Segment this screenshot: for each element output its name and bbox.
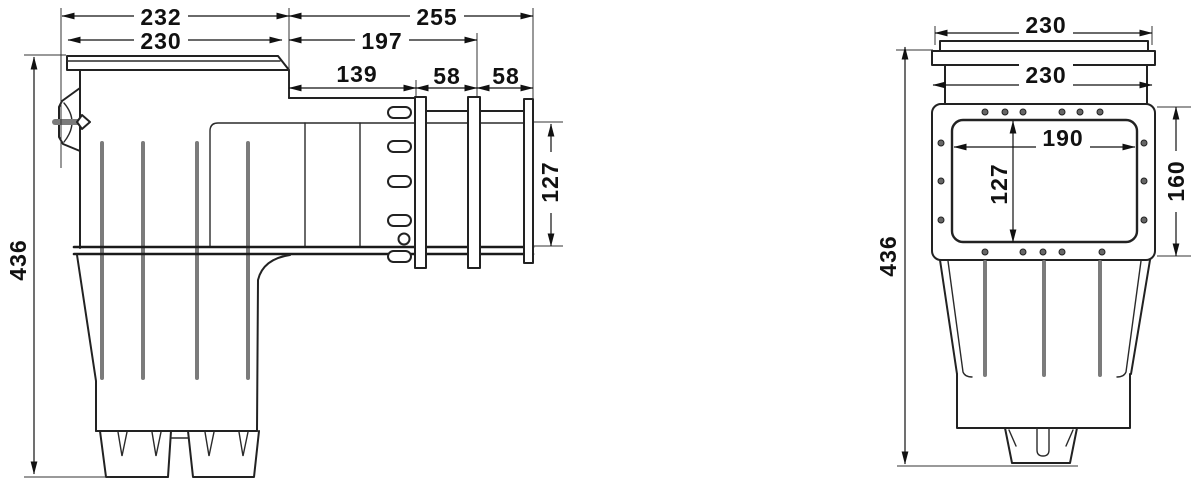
front-foot-slot [1037, 428, 1049, 456]
dim-label-overall-width: 232 [134, 4, 188, 30]
dim-text: 127 [537, 161, 563, 202]
dim-label-faceplate-height: 160 [1163, 151, 1189, 212]
side-bucket-left [77, 255, 96, 431]
dim-label-front-body-width: 230 [1019, 62, 1073, 88]
side-throat-inner-top [210, 123, 533, 246]
side-foot-notches [118, 432, 248, 456]
dim-label-overall-height-side: 436 [5, 239, 31, 280]
dim-text: 232 [140, 4, 181, 30]
side-clip [55, 88, 90, 151]
side-view: 232 230 255 197 139 58 58 127 436 [5, 4, 564, 477]
side-throat-end-cap [524, 99, 533, 263]
side-pivot-hole [399, 234, 410, 245]
side-flange-1 [415, 97, 426, 268]
side-bucket-right [257, 255, 290, 431]
front-lower-box [957, 374, 1130, 428]
dim-text: 230 [1025, 12, 1066, 38]
front-ribs [985, 262, 1100, 375]
dim-label-flange-gap-1: 58 [433, 63, 461, 89]
front-lid-top [940, 41, 1148, 51]
dim-label-lid-width: 230 [134, 28, 188, 54]
dim-text: 190 [1042, 125, 1083, 151]
side-foot-right [188, 431, 259, 477]
side-ribs [102, 143, 248, 378]
dim-label-throat-length: 255 [410, 4, 464, 30]
dim-text: 160 [1163, 160, 1189, 201]
dim-text: 197 [361, 28, 402, 54]
dim-label-flange-gap-2: 58 [492, 63, 520, 89]
drawing-canvas: 232 230 255 197 139 58 58 127 436 [0, 0, 1200, 493]
dim-text: 230 [140, 28, 181, 54]
dim-text: 230 [1025, 62, 1066, 88]
skimmer-technical-drawing: 232 230 255 197 139 58 58 127 436 [0, 0, 1200, 493]
side-flange-2 [468, 97, 480, 268]
dim-label-front-lid-width: 230 [1019, 12, 1073, 38]
dim-label-opening-width: 190 [1036, 125, 1090, 151]
dim-label-flange1-offset: 139 [336, 61, 377, 87]
dim-label-opening-height: 127 [986, 163, 1012, 204]
side-structure [55, 56, 533, 477]
dim-text: 255 [416, 4, 457, 30]
dim-label-flange2-offset: 197 [355, 28, 409, 54]
dim-label-overall-height-front: 436 [875, 235, 901, 276]
side-lid [67, 56, 289, 70]
dim-label-throat-height: 127 [537, 152, 564, 213]
front-view: 230 230 190 127 160 436 [875, 12, 1191, 466]
front-structure [932, 41, 1155, 463]
